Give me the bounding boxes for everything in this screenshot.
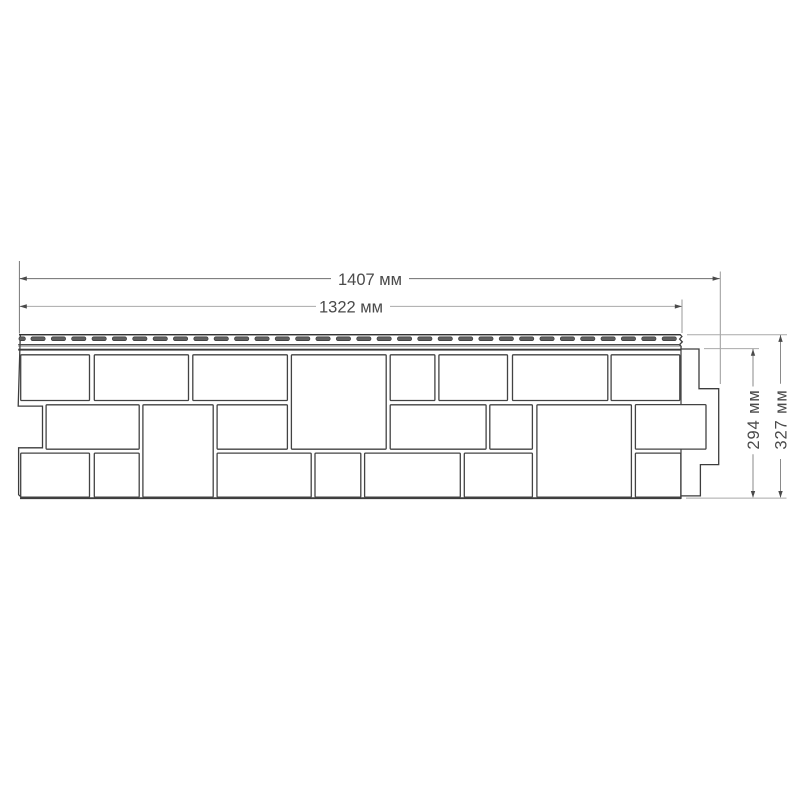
svg-text:1407 мм: 1407 мм [338, 271, 402, 289]
svg-text:294 мм: 294 мм [745, 389, 763, 449]
svg-text:1322 мм: 1322 мм [319, 298, 383, 316]
svg-text:327 мм: 327 мм [773, 389, 791, 449]
